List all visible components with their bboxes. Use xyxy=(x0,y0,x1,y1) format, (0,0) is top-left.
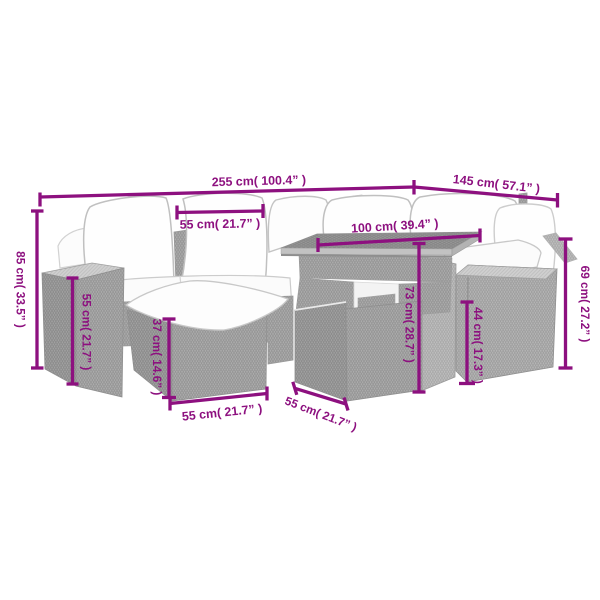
svg-text:44 cm( 17.3” ): 44 cm( 17.3” ) xyxy=(471,307,485,384)
svg-text:55 cm( 21.7” ): 55 cm( 21.7” ) xyxy=(80,294,94,371)
svg-text:69 cm( 27.2” ): 69 cm( 27.2” ) xyxy=(578,266,592,343)
svg-text:55 cm( 21.7” ): 55 cm( 21.7” ) xyxy=(180,216,261,231)
svg-text:255 cm( 100.4” ): 255 cm( 100.4” ) xyxy=(212,173,307,189)
svg-text:73 cm( 28.7” ): 73 cm( 28.7” ) xyxy=(403,286,417,363)
svg-text:37 cm( 14.6” ): 37 cm( 14.6” ) xyxy=(150,319,164,396)
svg-text:85 cm( 33.5” ): 85 cm( 33.5” ) xyxy=(14,251,28,328)
